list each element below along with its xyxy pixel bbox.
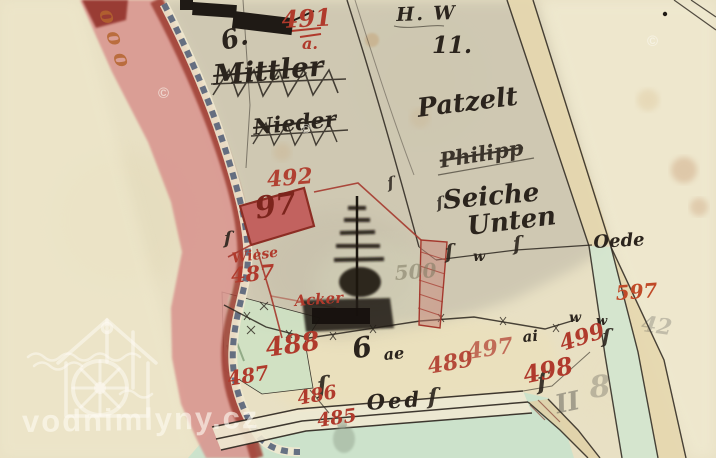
map-artwork	[0, 0, 716, 458]
cadastral-map-canvas[interactable]: H. W11.PatzeltPhilippSeicheUntenMittlerN…	[0, 0, 716, 458]
